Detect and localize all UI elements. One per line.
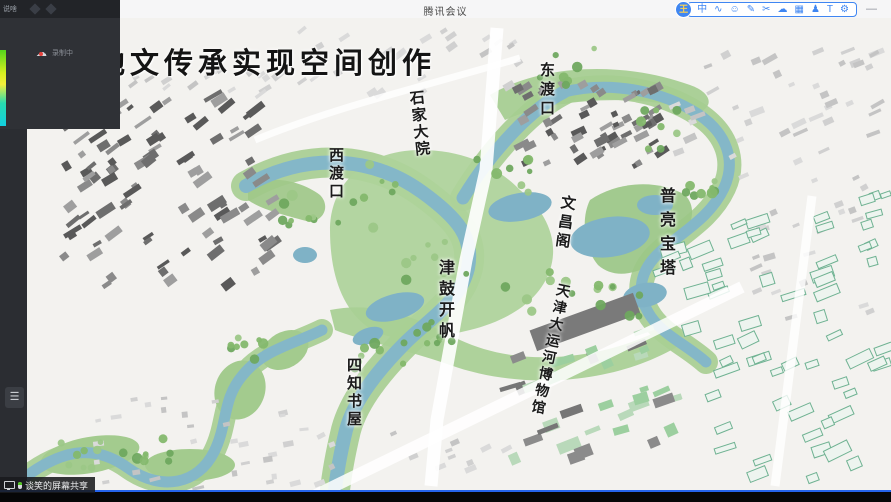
bottom-bar: [0, 492, 891, 502]
cloud-record-icon: ☁: [36, 48, 47, 58]
meeting-window: 以地文传承实现空间创作 东渡口石家大院西渡口文昌阁普亮宝塔津鼓开帆天津大运河博物…: [0, 0, 891, 502]
audio-level-strip: [0, 50, 6, 126]
map-label-xidukou: 西渡口: [325, 147, 346, 201]
ime-mode-icon[interactable]: 中: [697, 3, 707, 16]
screen-share-badge: 谈笑的屏幕共享: [0, 477, 95, 493]
recording-label: 录制中: [52, 48, 73, 58]
voice-icon[interactable]: ∿: [714, 3, 722, 16]
keyboard-icon[interactable]: ▦: [795, 3, 804, 16]
share-badge-text: 谈笑的屏幕共享: [25, 479, 88, 492]
video-thumbnail-panel[interactable]: ☁ 录制中: [0, 18, 120, 129]
map-label-dongdukou: 东渡口: [536, 62, 557, 119]
shared-map-image: [27, 18, 891, 492]
logo-diamond-icon: [45, 3, 56, 14]
ime-icon-box: 中∿☺✎✂☁▦♟T⚙: [687, 2, 857, 17]
skin-icon[interactable]: T: [827, 3, 833, 16]
logo-diamond-icon: [29, 3, 40, 14]
left-sidebar: ☰: [0, 129, 27, 502]
minimize-icon[interactable]: —: [866, 3, 877, 16]
settings-icon[interactable]: ⚙: [840, 3, 849, 16]
map-label-puliangbaota: 普亮宝塔: [653, 187, 677, 283]
monitor-icon: [4, 481, 15, 489]
map-label-jingukaifan: 津鼓开帆: [432, 259, 456, 343]
microphone-icon: [18, 482, 22, 489]
pen-icon[interactable]: ✎: [747, 3, 755, 16]
member-list-button[interactable]: ☰: [5, 387, 24, 408]
map-label-sizhishuwu: 四知书屋: [343, 357, 364, 429]
speaker-bar-text: 说啥: [3, 4, 17, 14]
recording-indicator: ☁ 录制中: [36, 48, 73, 58]
scissors-icon[interactable]: ✂: [762, 3, 770, 16]
cloud-icon[interactable]: ☁: [778, 3, 788, 16]
speaker-bar: 说啥: [0, 0, 120, 18]
emoji-icon[interactable]: ☺: [730, 3, 740, 16]
ime-toolbar: 王 中∿☺✎✂☁▦♟T⚙ —: [676, 2, 877, 17]
person-icon[interactable]: ♟: [811, 3, 820, 16]
